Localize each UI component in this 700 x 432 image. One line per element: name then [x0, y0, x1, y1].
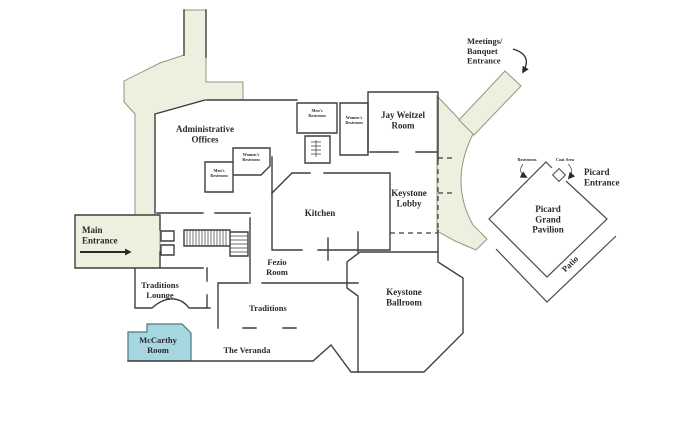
label-kitchen: Kitchen [305, 208, 336, 218]
label-traditions-lounge: TraditionsLounge [141, 280, 179, 300]
label-coat-area-note: Coat Area [556, 157, 575, 162]
label-mens-restroom-west: Men'sRestroom [210, 168, 228, 178]
label-picard-grand-pavilion: PicardGrandPavilion [532, 204, 564, 235]
staircase-hatch-icon [187, 230, 248, 252]
label-restrooms-note: Restrooms [518, 157, 537, 162]
walkway-meetings-entrance-strip [459, 71, 521, 135]
label-womens-restroom-north: Women'sRestroom [345, 115, 363, 125]
label-fezio-room: FezioRoom [266, 257, 288, 277]
walls-kitchen-lobby [272, 173, 438, 252]
label-keystone-lobby: KeystoneLobby [391, 188, 427, 208]
floor-plan-svg: AdministrativeOffices Jay WeitzelRoom Me… [0, 0, 700, 432]
label-the-veranda: The Veranda [224, 345, 272, 355]
walls-fezio-traditions [218, 218, 358, 328]
label-womens-restroom-west: Women'sRestroom [242, 152, 260, 162]
label-meetings-banquet-entrance: Meetings/BanquetEntrance [467, 36, 503, 66]
label-jay-weitzel-room: Jay WeitzelRoom [381, 110, 426, 130]
label-traditions: Traditions [249, 303, 287, 313]
label-patio: Patio [560, 254, 581, 274]
label-mens-restroom-north: Men'sRestroom [308, 108, 326, 118]
walls-building-top [155, 10, 297, 213]
meetings-entrance-arrow-icon [513, 49, 526, 72]
coat-area-arrow-icon [568, 164, 572, 178]
elevator-hatch-icon [311, 140, 321, 157]
label-administrative-offices: AdministrativeOffices [176, 124, 234, 144]
walls-keystone-ballroom [347, 252, 463, 372]
picard-door-icon [553, 169, 566, 182]
label-keystone-ballroom: KeystoneBallroom [386, 287, 422, 307]
floor-plan: AdministrativeOffices Jay WeitzelRoom Me… [0, 0, 700, 432]
restrooms-arrow-icon [521, 164, 526, 177]
walls-restroom-block [205, 103, 368, 193]
label-picard-entrance: PicardEntrance [584, 167, 620, 187]
